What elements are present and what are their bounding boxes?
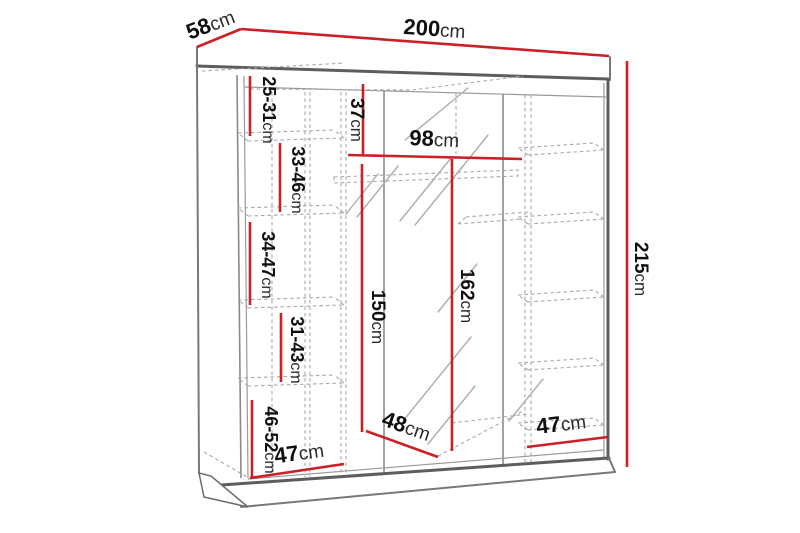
diagram-canvas: 58cm 200cm 215cm 25-31cm 33-46cm 37cm 98… — [0, 0, 800, 533]
plinth-right-edge — [609, 458, 615, 472]
label-mirror-height: 162cm — [456, 269, 477, 323]
plinth-bottom-edge — [241, 472, 615, 507]
left-shelf-1 — [238, 130, 344, 141]
left-foot — [199, 473, 248, 507]
label-top-section-height: 37cm — [346, 98, 367, 142]
label-hanging-height: 150cm — [367, 290, 388, 344]
label-top-shelf-spacing: 25-31cm — [259, 76, 279, 143]
label-lower-left-shelf-spacing: 31-43cm — [287, 316, 307, 383]
label-depth: 58cm — [183, 3, 238, 44]
mirror-hatch-line — [415, 166, 463, 225]
floor-rear-edge-middle — [452, 414, 528, 423]
label-height: 215cm — [630, 242, 651, 296]
left-inner-edge-inner — [244, 76, 248, 478]
label-right-section-width: 47cm — [535, 408, 587, 439]
left-shelf-3 — [238, 297, 344, 308]
left-outer-edge — [197, 66, 199, 473]
label-middle-left-shelf-spacing: 34-47cm — [258, 231, 278, 298]
top-front-edge — [197, 66, 608, 79]
label-middle-inner-width: 98cm — [409, 125, 460, 152]
wardrobe-dimension-diagram: 58cm 200cm 215cm 25-31cm 33-46cm 37cm 98… — [0, 0, 800, 533]
middle-shelf — [458, 212, 528, 224]
label-width: 200cm — [403, 14, 467, 43]
mirror-hatch-line — [459, 135, 488, 171]
dim-line-middle-inner-width — [348, 155, 522, 159]
label-upper-left-shelf-spacing: 33-46cm — [288, 146, 308, 213]
mirror-hatch-line — [403, 337, 471, 421]
